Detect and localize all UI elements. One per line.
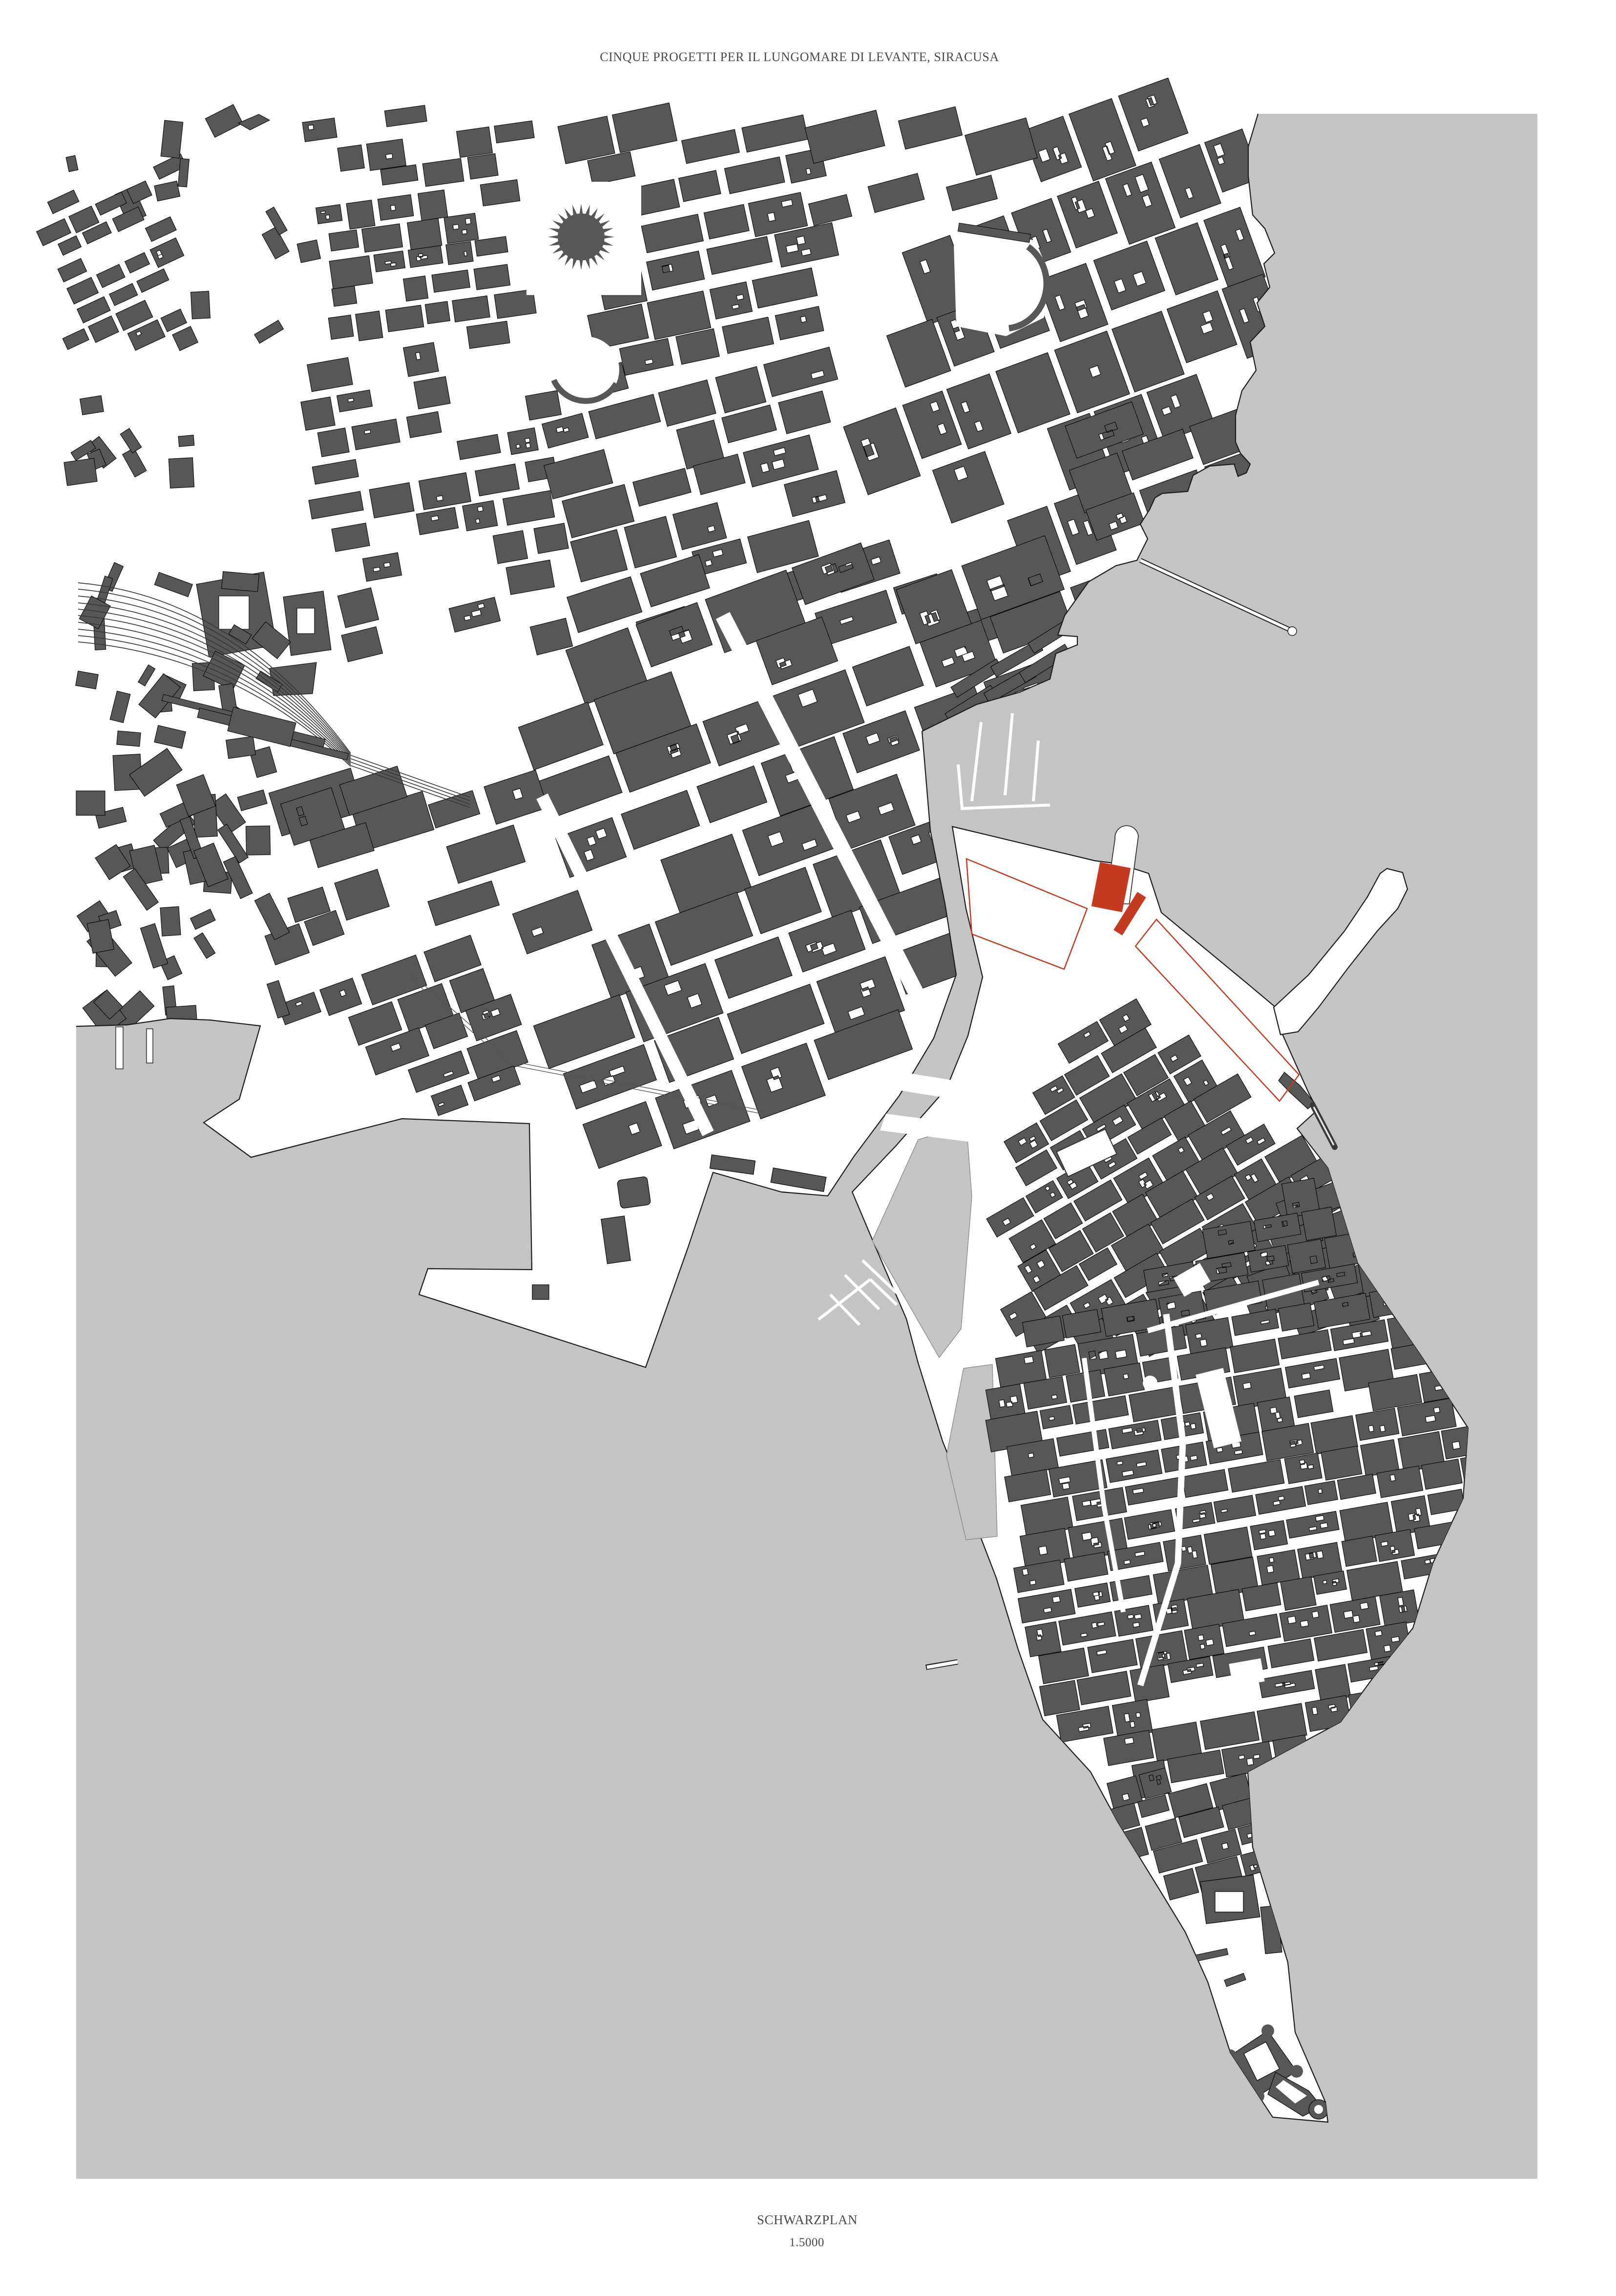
svg-text:SCHWARZPLAN: SCHWARZPLAN xyxy=(757,2212,858,2227)
svg-text:CINQUE PROGETTI PER IL LUNGOMA: CINQUE PROGETTI PER IL LUNGOMARE DI LEVA… xyxy=(600,50,999,64)
svg-text:1.5000: 1.5000 xyxy=(789,2236,824,2249)
